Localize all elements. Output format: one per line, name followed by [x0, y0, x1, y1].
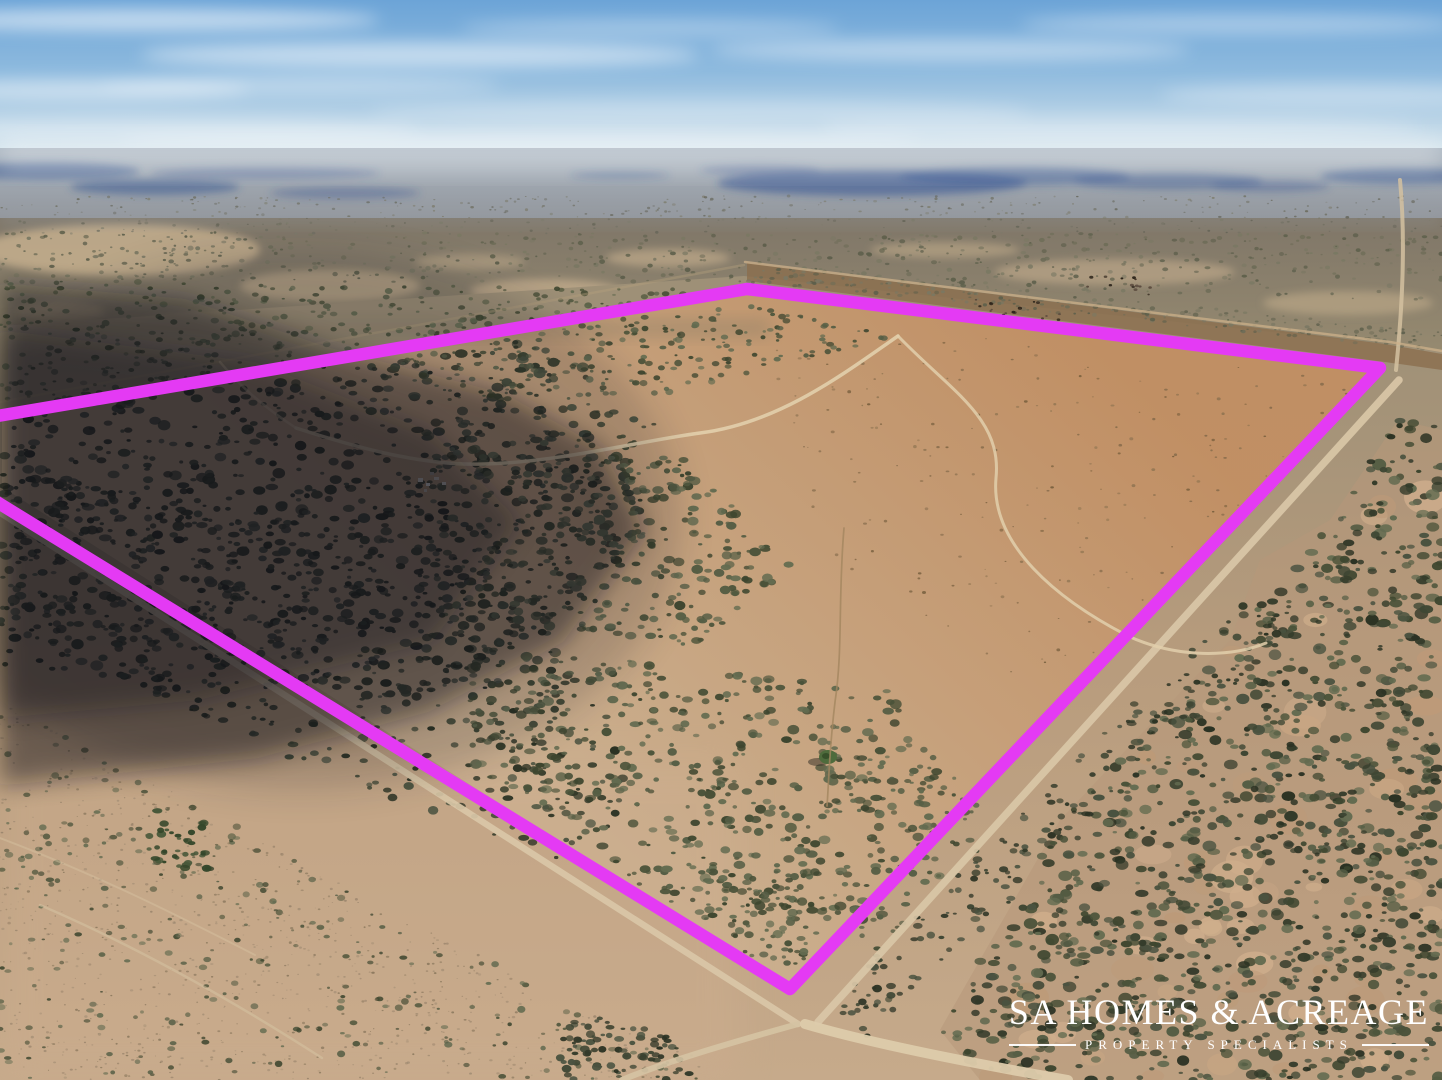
brand-subtitle-row: PROPERTY SPECIALISTS	[1009, 1037, 1429, 1053]
brand-rule-right	[1362, 1044, 1429, 1046]
brand-title: SA HOMES & ACREAGE	[1009, 994, 1429, 1032]
brand-watermark: SA HOMES & ACREAGE PROPERTY SPECIALISTS	[1009, 994, 1429, 1053]
brand-subtitle: PROPERTY SPECIALISTS	[1085, 1037, 1353, 1053]
horizon-haze	[0, 138, 1442, 172]
bottom-left-sand	[0, 760, 740, 1080]
brand-rule-left	[1009, 1044, 1076, 1046]
aerial-photo-stage: SA HOMES & ACREAGE PROPERTY SPECIALISTS	[0, 0, 1442, 1080]
aerial-photo	[0, 0, 1442, 1080]
band-blend	[0, 210, 1442, 224]
